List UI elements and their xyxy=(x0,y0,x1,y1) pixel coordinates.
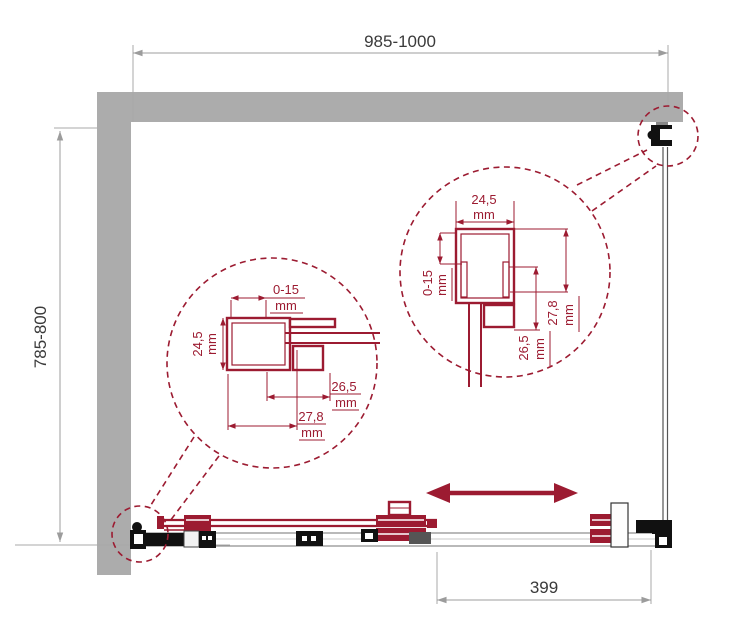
detail-left-adjust-value: 0-15 xyxy=(273,282,299,297)
sliding-door xyxy=(157,502,620,543)
wall-left xyxy=(97,92,131,575)
carriage-block-slot xyxy=(365,533,373,539)
panel-guide xyxy=(611,503,628,547)
dim-fixed-panel-value: 399 xyxy=(530,578,558,597)
detail-right-glass-offset-value: 26,5 xyxy=(516,335,531,360)
dim-depth-value: 785-800 xyxy=(31,306,50,368)
detail-left-dim-glass-offset: 26,5 mm xyxy=(267,372,361,410)
detail-left-depth-unit: mm xyxy=(301,425,323,440)
shower-plan-drawing: 985-1000 785-800 399 xyxy=(0,0,750,642)
wall-bracket-top-right xyxy=(648,122,673,146)
detail-left-adjust-unit: mm xyxy=(275,298,297,313)
detail-left-glass-offset-value: 26,5 xyxy=(331,379,356,394)
detail-right-glass-offset-unit: mm xyxy=(532,338,547,360)
detail-right-depth-unit: mm xyxy=(561,304,576,326)
detail-left-glass-offset-unit: mm xyxy=(335,395,357,410)
side-glass-panel xyxy=(663,147,668,529)
corner-bracket-bottom-right xyxy=(636,520,672,548)
detail-left-profile: 0-15 mm 24,5 mm 26,5 mm 27,8 mm xyxy=(190,282,380,440)
detail-left-dim-adjust: 0-15 mm xyxy=(231,282,305,317)
detail-left-depth-value: 27,8 xyxy=(298,409,323,424)
detail-right-width-unit: mm xyxy=(473,207,495,222)
detail-left-width-unit: mm xyxy=(204,333,219,355)
detail-right-profile: 24,5 mm 0-15 mm 26,5 mm 27,8 mm xyxy=(420,192,579,387)
detail-right-width-value: 24,5 xyxy=(471,192,496,207)
center-stopper xyxy=(296,531,323,546)
detail-right-dim-depth: 27,8 mm xyxy=(510,229,579,332)
detail-right-depth-value: 27,8 xyxy=(545,300,560,325)
carriage-guide xyxy=(409,532,431,544)
detail-right-adjust-unit: mm xyxy=(434,274,449,296)
dim-width-value: 985-1000 xyxy=(364,32,436,51)
wall-top xyxy=(97,92,683,122)
detail-right-adjust-value: 0-15 xyxy=(420,270,435,296)
drawing-svg: 985-1000 785-800 399 xyxy=(0,0,750,642)
slide-direction-arrow xyxy=(426,483,578,503)
detail-left-dim-width: 24,5 mm xyxy=(190,318,223,370)
detail-left-width-value: 24,5 xyxy=(190,331,205,356)
dimension-fixed-panel: 399 xyxy=(437,550,651,604)
detail-right-dim-width: 24,5 mm xyxy=(456,192,514,228)
